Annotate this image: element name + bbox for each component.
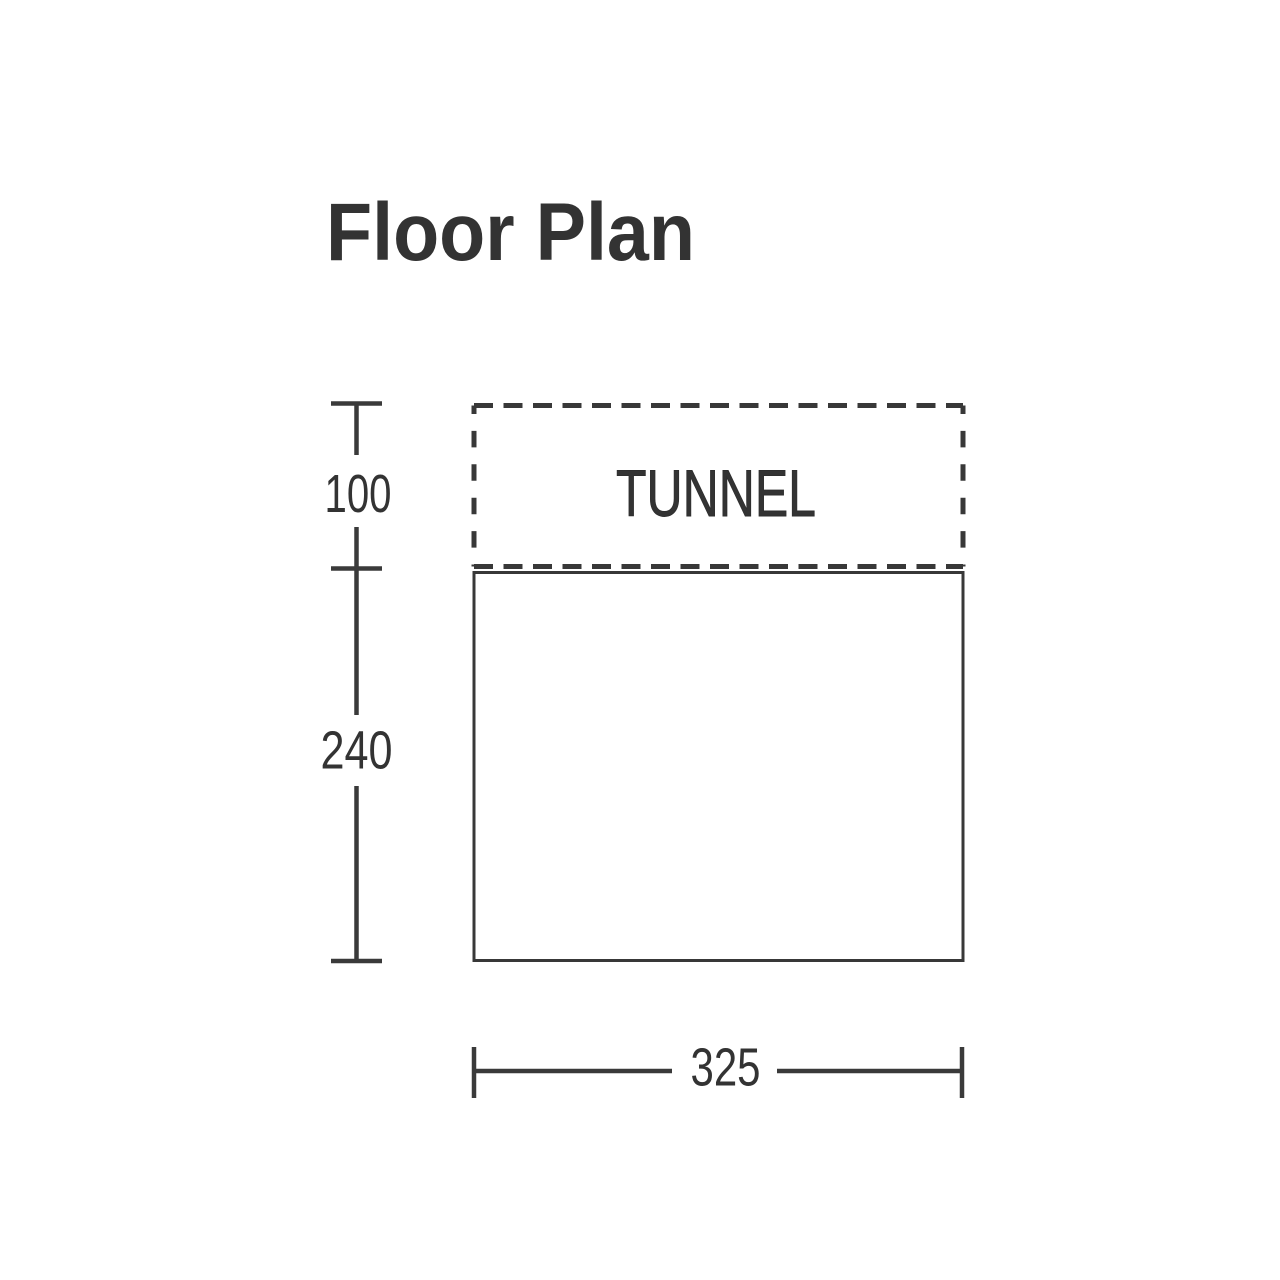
svg-text:Floor Plan: Floor Plan [326,187,695,278]
svg-text:100: 100 [325,464,392,524]
svg-text:325: 325 [691,1038,761,1098]
svg-text:240: 240 [321,721,393,781]
svg-text:TUNNEL: TUNNEL [616,456,816,530]
